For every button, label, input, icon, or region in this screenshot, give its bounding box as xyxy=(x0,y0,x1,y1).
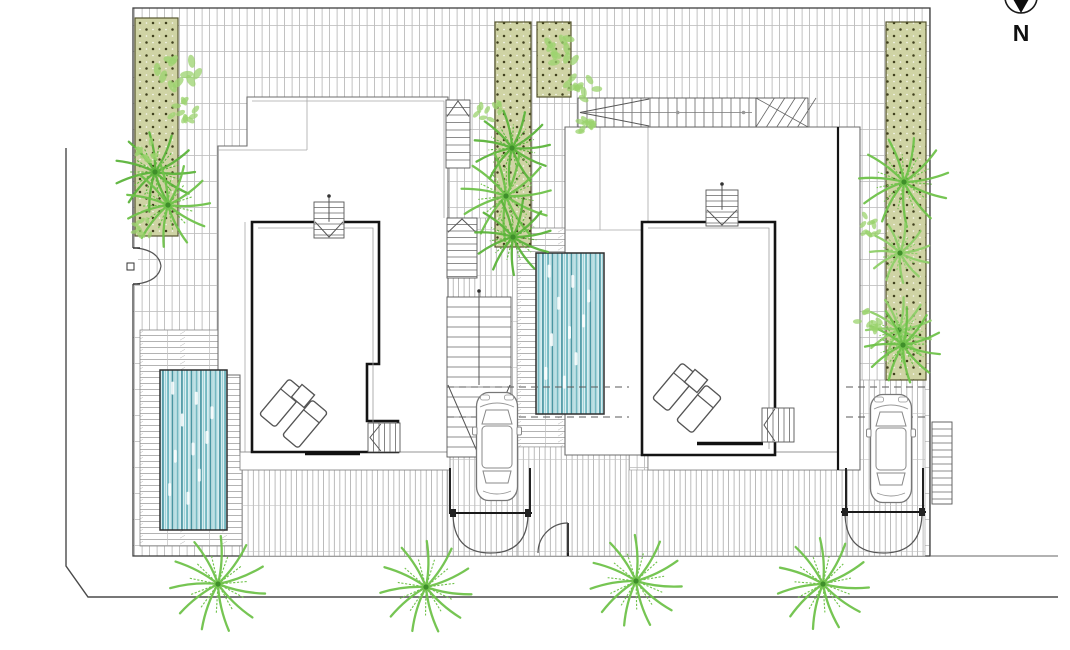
stair-symbol xyxy=(762,408,794,442)
villa-a xyxy=(218,97,450,470)
villa-b-walls xyxy=(642,222,775,455)
stair-symbol xyxy=(368,423,400,452)
villa-b xyxy=(565,127,860,470)
swimming-pool xyxy=(160,370,227,530)
stair-symbol xyxy=(932,422,952,504)
driveway-paving xyxy=(242,470,447,556)
stair-symbol xyxy=(756,98,816,127)
stair-symbol xyxy=(447,218,477,278)
stair-symbol xyxy=(446,100,470,168)
swimming-pool xyxy=(536,253,604,414)
car-top-view xyxy=(867,395,916,503)
stair-symbol xyxy=(578,98,756,127)
driveway-paving xyxy=(629,470,846,556)
north-label: N xyxy=(1013,20,1030,46)
site-plan-drawing: N xyxy=(0,0,1070,650)
site-plan-page: N xyxy=(0,0,1070,650)
car-top-view xyxy=(473,393,522,501)
driveway-paving xyxy=(517,447,629,556)
